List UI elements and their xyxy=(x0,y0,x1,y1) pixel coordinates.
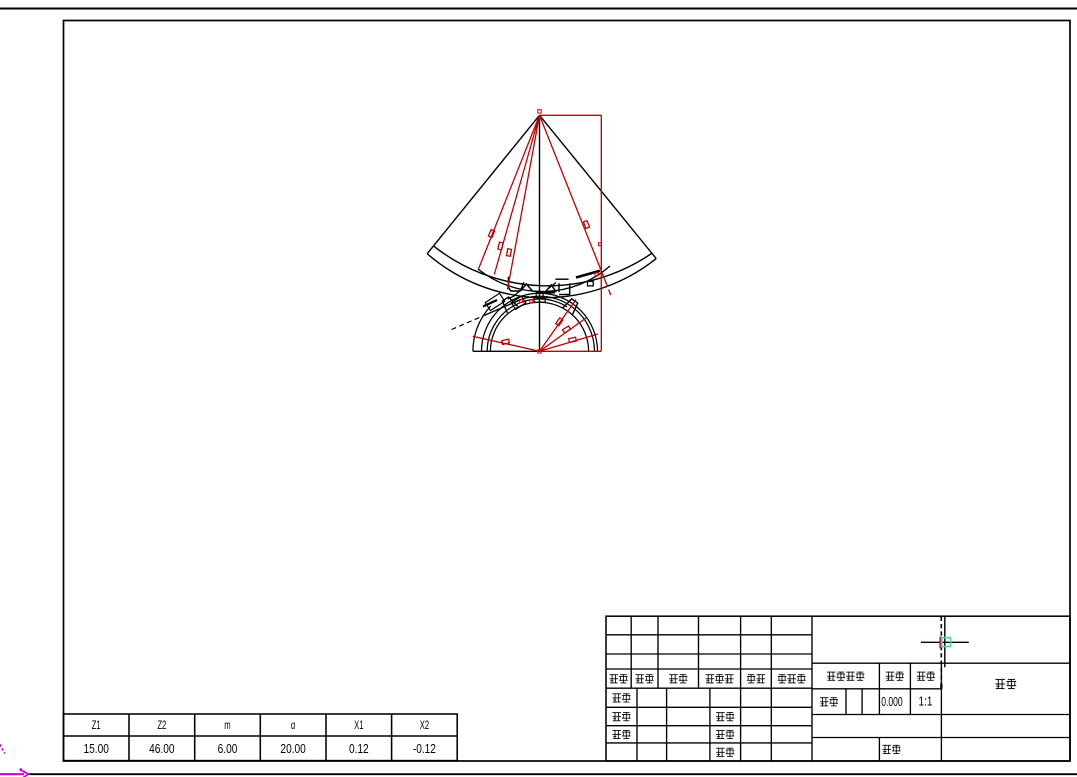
svg-text:X2: X2 xyxy=(420,719,430,732)
svg-text:0.000: 0.000 xyxy=(881,695,902,709)
svg-text:-0.12: -0.12 xyxy=(413,742,436,756)
svg-text:Z2: Z2 xyxy=(157,719,166,732)
svg-text:Z1: Z1 xyxy=(92,719,101,732)
svg-text:6.00: 6.00 xyxy=(218,742,238,756)
svg-text:m: m xyxy=(224,719,230,732)
svg-text:46.00: 46.00 xyxy=(149,742,175,756)
svg-text:20.00: 20.00 xyxy=(280,742,306,756)
svg-text:X1: X1 xyxy=(354,719,364,732)
svg-text:15.00: 15.00 xyxy=(84,742,110,756)
svg-text:0.12: 0.12 xyxy=(349,742,369,756)
svg-text:α: α xyxy=(291,719,296,732)
svg-text:1:1: 1:1 xyxy=(919,696,933,709)
